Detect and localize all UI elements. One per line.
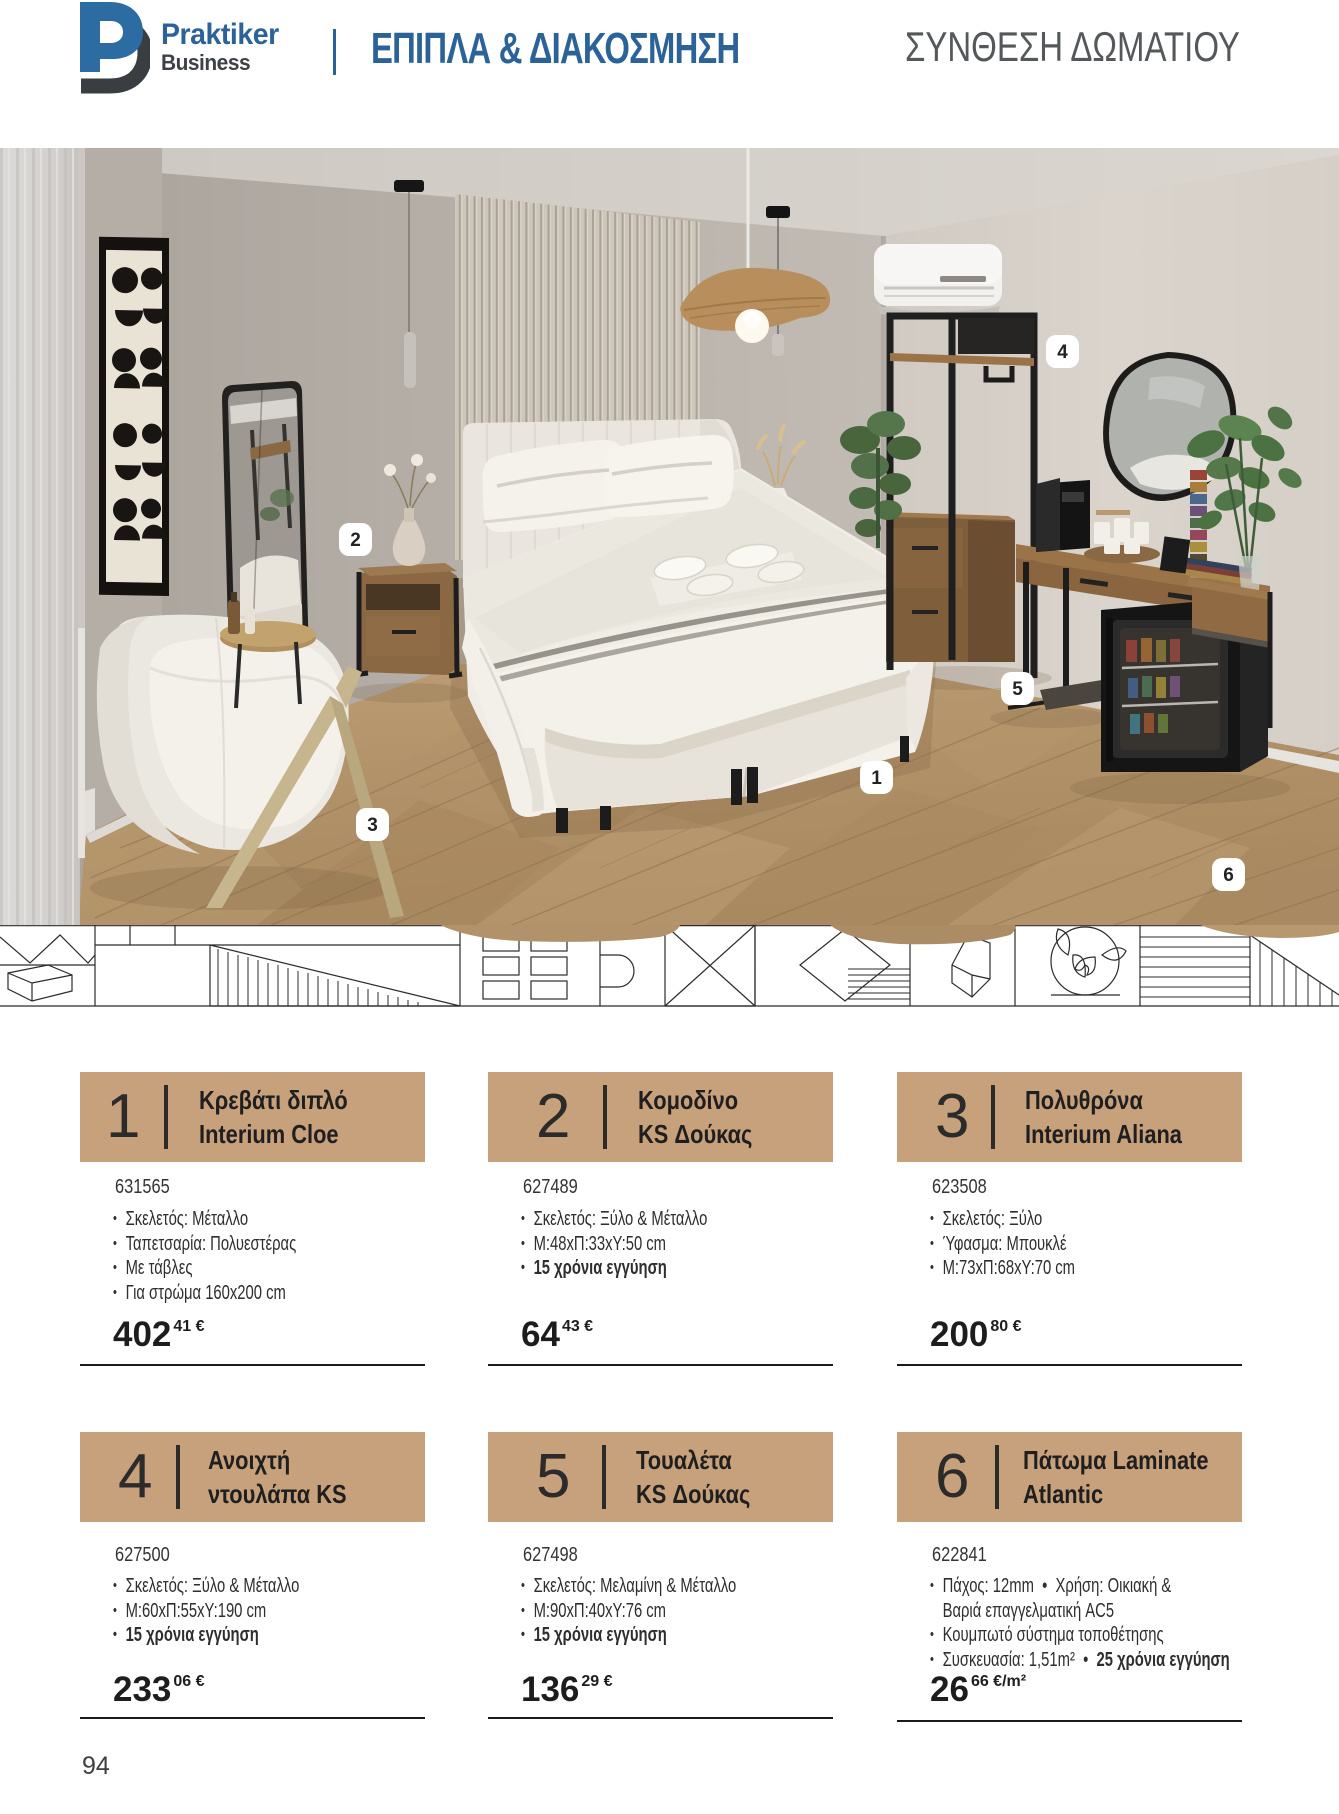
svg-text:2: 2 bbox=[350, 530, 361, 551]
svg-text:5: 5 bbox=[1012, 679, 1023, 700]
svg-text:1: 1 bbox=[871, 768, 882, 789]
svg-text:4: 4 bbox=[1057, 342, 1068, 363]
svg-text:6: 6 bbox=[1223, 865, 1234, 886]
svg-text:3: 3 bbox=[367, 815, 378, 836]
